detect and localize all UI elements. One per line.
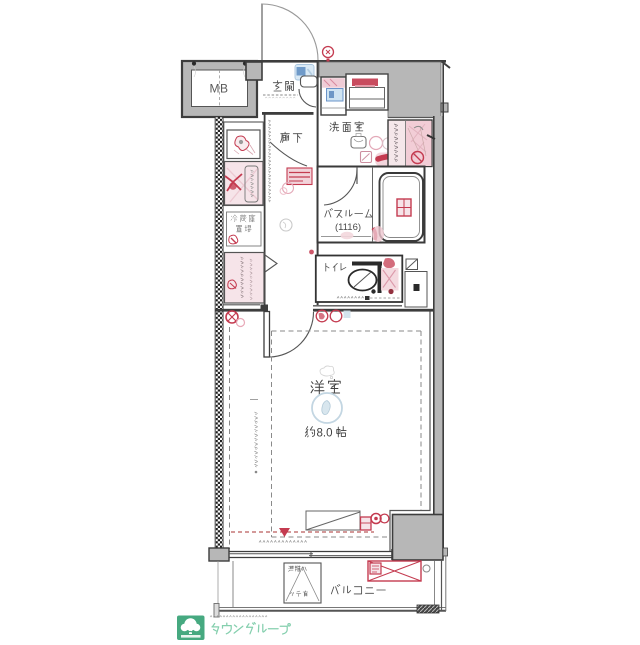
svg-text:MB: MB bbox=[210, 82, 229, 96]
svg-text:(1116): (1116) bbox=[335, 222, 361, 233]
svg-text:8.0: 8.0 bbox=[317, 428, 333, 440]
